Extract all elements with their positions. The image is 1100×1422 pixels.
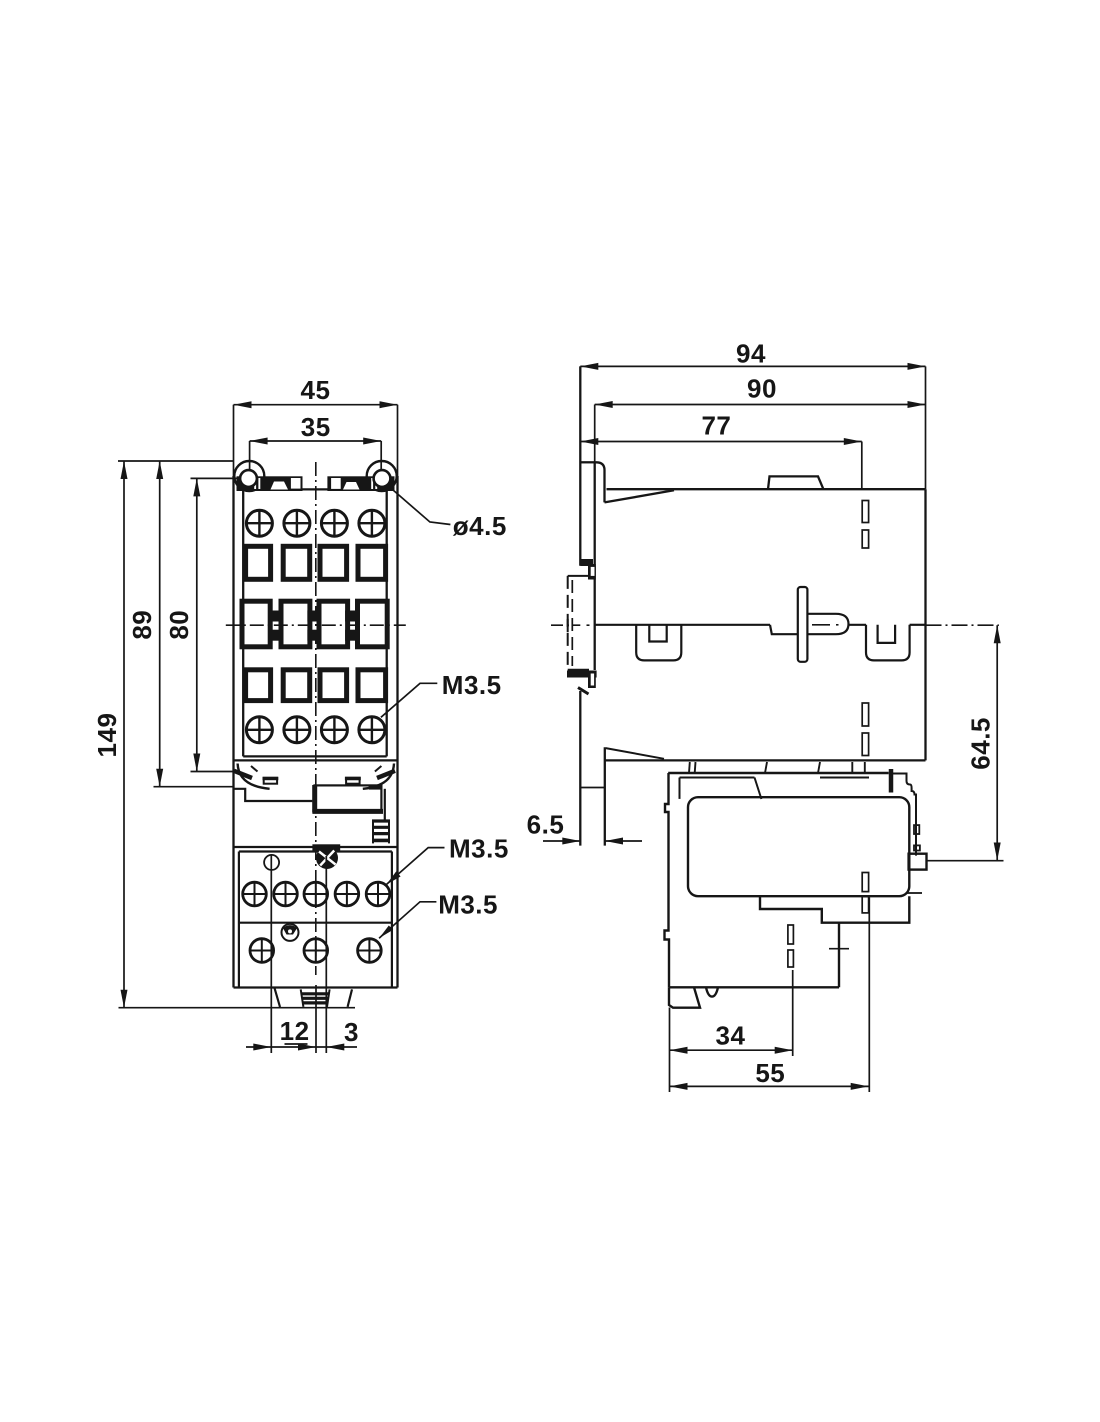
svg-text:34: 34	[716, 1021, 746, 1051]
svg-text:M3.5: M3.5	[449, 834, 509, 864]
svg-text:3: 3	[344, 1017, 359, 1047]
svg-text:94: 94	[736, 339, 766, 369]
svg-text:80: 80	[164, 610, 194, 640]
svg-text:64.5: 64.5	[966, 717, 996, 770]
svg-text:89: 89	[127, 610, 157, 640]
svg-text:45: 45	[301, 375, 331, 405]
svg-text:55: 55	[755, 1058, 785, 1088]
svg-text:35: 35	[301, 412, 331, 442]
svg-text:ø4.5: ø4.5	[453, 511, 507, 541]
svg-text:90: 90	[747, 374, 777, 404]
svg-text:M3.5: M3.5	[442, 670, 502, 700]
svg-text:12: 12	[280, 1016, 310, 1046]
svg-text:77: 77	[701, 411, 731, 441]
svg-text:149: 149	[92, 713, 122, 758]
svg-text:M3.5: M3.5	[438, 890, 498, 920]
svg-text:6.5: 6.5	[527, 810, 565, 840]
